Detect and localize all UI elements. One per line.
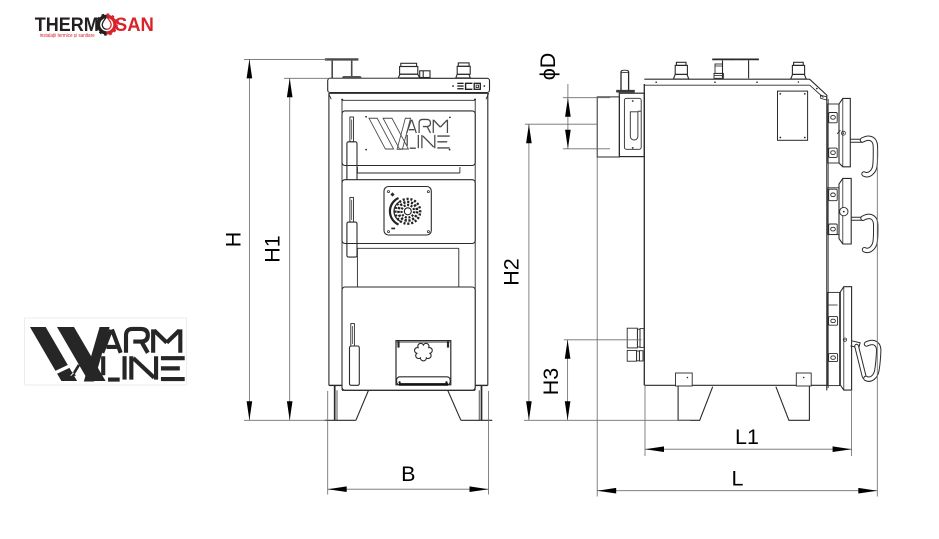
- svg-text:B: B: [401, 462, 415, 486]
- svg-text:L: L: [732, 467, 744, 491]
- svg-text:SAN: SAN: [115, 14, 154, 36]
- svg-text:H: H: [222, 232, 246, 248]
- svg-text:H2: H2: [500, 258, 524, 285]
- svg-text:H3: H3: [539, 368, 563, 396]
- svg-text:instalații termice și sanitare: instalații termice și sanitare: [40, 33, 95, 39]
- svg-text:ϕD: ϕD: [536, 53, 560, 81]
- svg-text:L1: L1: [735, 425, 759, 449]
- svg-text:H1: H1: [261, 235, 285, 262]
